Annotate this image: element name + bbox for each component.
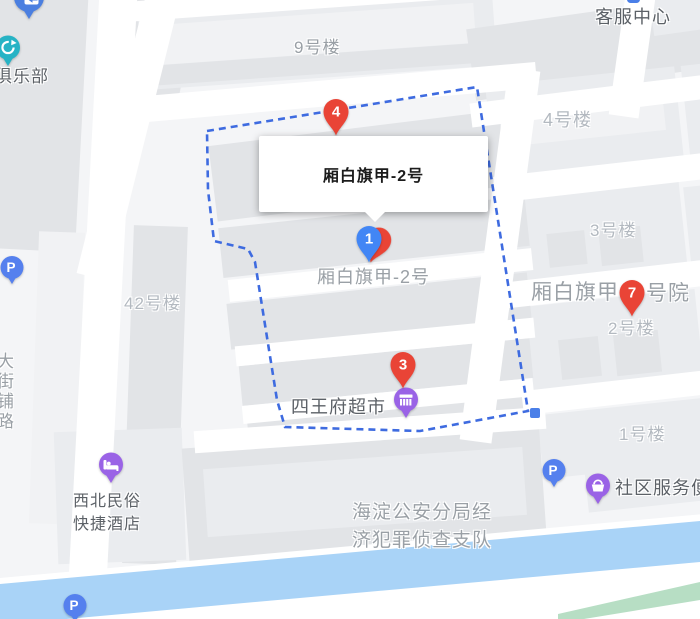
map-building-block bbox=[582, 431, 700, 512]
map-building-block bbox=[0, 0, 89, 252]
map-building-block bbox=[598, 226, 644, 266]
svg-text:P: P bbox=[6, 259, 15, 274]
infobox-pointer bbox=[364, 211, 386, 222]
greenway-strip bbox=[558, 582, 700, 619]
map-building-block bbox=[613, 330, 662, 376]
map-building-block bbox=[647, 0, 700, 36]
svg-text:4: 4 bbox=[332, 104, 341, 121]
mini-sign-icon bbox=[530, 408, 540, 418]
map-building-block bbox=[558, 336, 602, 380]
infobox-title: 厢白旗甲-2号 bbox=[323, 162, 424, 186]
map-building-block bbox=[546, 230, 587, 268]
pin-sliver-icon bbox=[627, 0, 640, 3]
map-canvas[interactable]: 客服中心俱乐部9号楼4号楼3号楼厢白旗甲号院2号楼42号楼厢白旗甲-2号四王府超… bbox=[0, 0, 700, 619]
map-infobox[interactable]: 厢白旗甲-2号 bbox=[259, 136, 488, 212]
map-label: 大街铺路 bbox=[0, 352, 16, 432]
parking-icon[interactable]: P bbox=[0, 255, 24, 290]
